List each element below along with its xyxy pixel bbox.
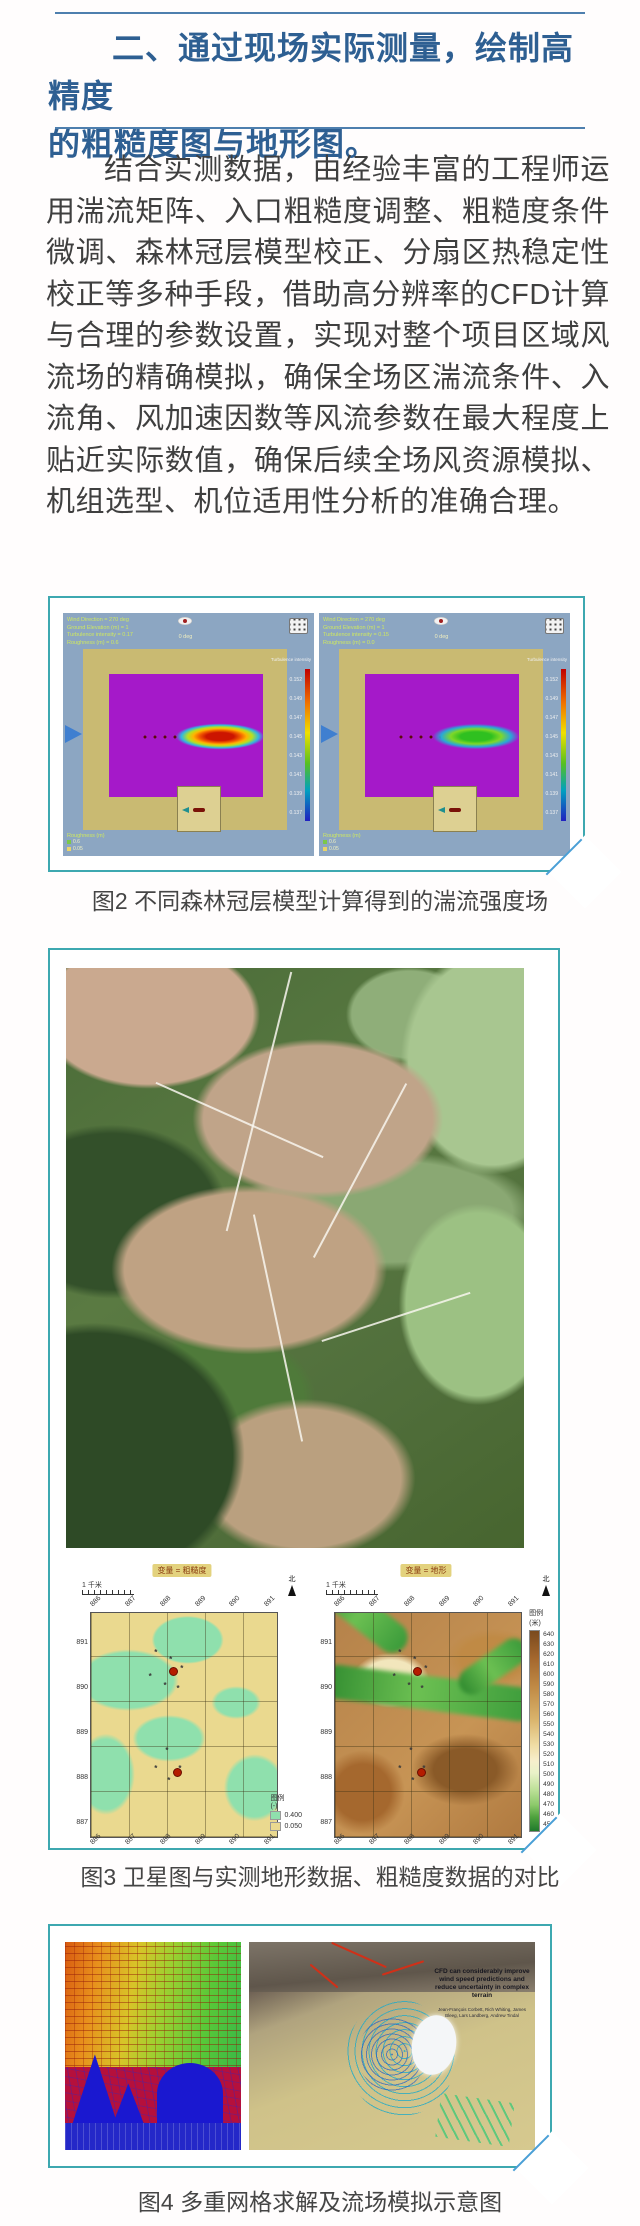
tick-label: 889 (194, 1595, 207, 1608)
green-streamlines (435, 2093, 514, 2147)
turbine-marker: * (164, 1682, 167, 1690)
inflow-arrow-icon (321, 725, 338, 743)
legend-swatch (67, 847, 71, 851)
terrain-plot: * * * * * * * * * * (334, 1612, 522, 1838)
figure4-caption: 图4 多重网格求解及流场模拟示意图 (0, 2183, 640, 2217)
inset-box (433, 786, 477, 832)
window-icon (545, 618, 564, 634)
tick-label: 889 (438, 1595, 451, 1608)
mesh-grid (65, 1942, 241, 2073)
roughness-legend: Roughness (m) 0.6 0.05 (323, 833, 361, 852)
grid-lines (91, 1613, 277, 1837)
heading-line1: 二、通过现场实际测量，绘制高精度 (48, 24, 596, 120)
figure3-frame: 变量 = 粗糙度 1 千米 北 886 887 888 889 890 891 (48, 948, 560, 1850)
field-path (253, 1214, 303, 1441)
met-mast-dot (169, 1667, 178, 1676)
window-icon (289, 618, 308, 634)
tick-label: 887 (124, 1595, 137, 1608)
compass-icon: 0 deg (178, 617, 192, 643)
multigrid-mesh-image (65, 1942, 241, 2150)
colorbar-title: Turbulence intensity (265, 657, 311, 662)
ground-area (83, 649, 287, 830)
north-arrow-icon: 北 (288, 1574, 296, 1596)
inflow-arrow-icon (65, 725, 82, 743)
tick-label: 891 (508, 1595, 521, 1608)
legend-value: 0.400 (284, 1810, 302, 1821)
inset-arrow-icon (182, 807, 189, 813)
turbulence-plume (430, 723, 522, 750)
legend-value: 0.05 (73, 846, 83, 853)
inset-turbine-mark (193, 808, 205, 812)
annotation-authors: Jean-François Corbett, Rich Whiting, Jam… (432, 2007, 532, 2019)
figure2-image: Wind Direction = 270 deg Ground Elevatio… (63, 613, 570, 856)
tick-label: 886 (89, 1595, 102, 1608)
colorbar-ticks: 0.152 0.149 0.147 0.145 0.143 0.141 0.13… (545, 671, 558, 823)
annotation-text: CFD can considerably improve wind speed … (432, 1968, 532, 2019)
scale-ruler (326, 1590, 378, 1595)
met-mast-dot (413, 1667, 422, 1676)
x-axis-ticks-bottom: 886 887 888 889 890 891 (334, 1836, 520, 1843)
mesh-wall (65, 1942, 241, 2073)
compass-label: 0 deg (179, 634, 193, 640)
met-mast-dot (417, 1768, 426, 1777)
field-path (226, 972, 292, 1231)
map-title-badge: 变量 = 地形 (400, 1564, 451, 1577)
turbine-marker: * (149, 1673, 152, 1681)
cfd-info-text: Wind Direction = 270 deg Ground Elevatio… (67, 617, 133, 647)
scale-label: 1 千米 (326, 1582, 346, 1589)
scale-ruler (82, 1590, 134, 1595)
tick-label: 887 (368, 1595, 381, 1608)
legend-swatch (270, 1822, 281, 1831)
turbine-marker: * (177, 1685, 180, 1693)
cfd-panel-right: Wind Direction = 270 deg Ground Elevatio… (319, 613, 570, 856)
inset-turbine-mark (449, 808, 461, 812)
mesh-base-band (65, 2123, 241, 2150)
met-mast-dot (173, 1768, 182, 1777)
compass-icon: 0 deg (434, 617, 448, 643)
turbulence-plume (174, 723, 266, 750)
figure3-caption: 图3 卫星图与实测地形数据、粗糙度数据的对比 (0, 1858, 640, 1892)
elevation-colorbar (529, 1630, 540, 1832)
north-arrow-glyph (288, 1585, 296, 1596)
legend-unit: (-) (270, 1803, 302, 1810)
legend-title: 图例 (529, 1608, 554, 1618)
map-title-badge: 变量 = 粗糙度 (152, 1564, 211, 1577)
roughness-plot: * * * * * * * * * * (90, 1612, 278, 1838)
field-path (321, 1292, 470, 1342)
turbine-marker: * (408, 1682, 411, 1690)
elevation-legend: 图例 (米) 640 630 620 610 600 590 580 570 5… (529, 1608, 554, 1832)
scale-label: 1 千米 (82, 1582, 102, 1589)
tick-label: 891 (264, 1595, 277, 1608)
north-arrow-glyph (542, 1585, 550, 1596)
legend-swatch (270, 1811, 281, 1820)
tick-label: 890 (229, 1595, 242, 1608)
turbine-marker: * (421, 1685, 424, 1693)
north-label: 北 (543, 1576, 550, 1583)
tick-label: 886 (333, 1595, 346, 1608)
legend-swatch (67, 840, 71, 844)
inset-box (177, 786, 221, 832)
legend-swatch (323, 847, 327, 851)
turbine-marker: * (180, 1665, 183, 1673)
terrain-map: 变量 = 地形 1 千米 北 886 887 888 889 890 891 (312, 1564, 540, 1850)
inset-arrow-icon (438, 807, 445, 813)
contour-maps: 变量 = 粗糙度 1 千米 北 886 887 888 889 890 891 (68, 1564, 540, 1850)
compass-dial (434, 617, 448, 625)
compass-dial (178, 617, 192, 625)
colorbar-ticks: 0.152 0.149 0.147 0.145 0.143 0.141 0.13… (289, 671, 302, 823)
tick-label: 888 (159, 1595, 172, 1608)
field-path (156, 1082, 324, 1158)
cfd-panel-left: Wind Direction = 270 deg Ground Elevatio… (63, 613, 314, 856)
cfd-info-text: Wind Direction = 270 deg Ground Elevatio… (323, 617, 389, 647)
flow-simulation-image: CFD can considerably improve wind speed … (249, 1942, 535, 2150)
article-page: 二、通过现场实际测量，绘制高精度 的粗糙度图与地形图。 结合实测数据，由经验丰富… (0, 0, 640, 2226)
ground-area (339, 649, 543, 830)
annotation-title: CFD can considerably improve wind speed … (432, 1968, 532, 2000)
turbine-marker: * (393, 1673, 396, 1681)
turbine-marker: * (413, 1656, 416, 1664)
legend-title: 图例 (270, 1793, 302, 1803)
section-heading: 二、通过现场实际测量，绘制高精度 的粗糙度图与地形图。 (48, 24, 596, 168)
tick-label: 888 (403, 1595, 416, 1608)
figure2-caption: 图2 不同森林冠层模型计算得到的湍流强度场 (0, 882, 640, 916)
tick-label: 890 (473, 1595, 486, 1608)
turbine-marker: * (411, 1777, 414, 1785)
grid-lines (335, 1613, 521, 1837)
scale-bar: 1 千米 (82, 1580, 134, 1595)
roughness-legend: Roughness (m) 0.6 0.05 (67, 833, 105, 852)
turbine-marker: * (409, 1747, 412, 1755)
x-axis-ticks-bottom: 886 887 888 889 890 891 (90, 1836, 276, 1843)
turbine-marker: * (154, 1765, 157, 1773)
figure4-image: CFD can considerably improve wind speed … (65, 1942, 535, 2152)
legend-value: 0.05 (329, 846, 339, 853)
top-divider (55, 12, 585, 14)
turbine-marker: * (398, 1649, 401, 1657)
figure4-frame: CFD can considerably improve wind speed … (48, 1924, 552, 2168)
elevation-values: 640 630 620 610 600 590 580 570 560 550 … (543, 1630, 554, 1832)
y-axis-ticks: 891 890 889 888 887 (314, 1620, 332, 1845)
x-axis-ticks-top: 886 887 888 889 890 891 (334, 1598, 520, 1605)
heading-divider (55, 127, 585, 129)
roughness-map: 变量 = 粗糙度 1 千米 北 886 887 888 889 890 891 (68, 1564, 296, 1850)
turbine-marker: * (398, 1765, 401, 1773)
legend-unit: (米) (529, 1618, 554, 1628)
x-axis-ticks-top: 886 887 888 889 890 891 (90, 1598, 276, 1605)
figure2-frame: Wind Direction = 270 deg Ground Elevatio… (48, 596, 585, 872)
colorbar-title: Turbulence intensity (521, 657, 567, 662)
turbine-marker: * (167, 1777, 170, 1785)
field-path (313, 1083, 407, 1258)
turbine-marker: * (169, 1656, 172, 1664)
cfd-domain (365, 674, 519, 797)
legend-swatch (323, 840, 327, 844)
terrain-peak (157, 2063, 224, 2125)
turbine-marker: * (424, 1665, 427, 1673)
y-axis-ticks: 891 890 889 888 887 (70, 1620, 88, 1845)
turbine-marker: * (165, 1747, 168, 1755)
roughness-legend: 图例 (-) 0.400 0.050 (270, 1793, 302, 1832)
north-arrow-icon: 北 (542, 1574, 550, 1596)
scale-bar: 1 千米 (326, 1580, 378, 1595)
compass-label: 0 deg (435, 634, 449, 640)
turbine-marker: * (154, 1649, 157, 1657)
cfd-domain (109, 674, 263, 797)
satellite-image (66, 968, 524, 1548)
body-paragraph: 结合实测数据，由经验丰富的工程师运用湍流矩阵、入口粗糙度调整、粗糙度条件微调、森… (46, 150, 610, 524)
colorbar (561, 669, 566, 821)
legend-value: 0.050 (284, 1821, 302, 1832)
north-label: 北 (289, 1576, 296, 1583)
colorbar (305, 669, 310, 821)
